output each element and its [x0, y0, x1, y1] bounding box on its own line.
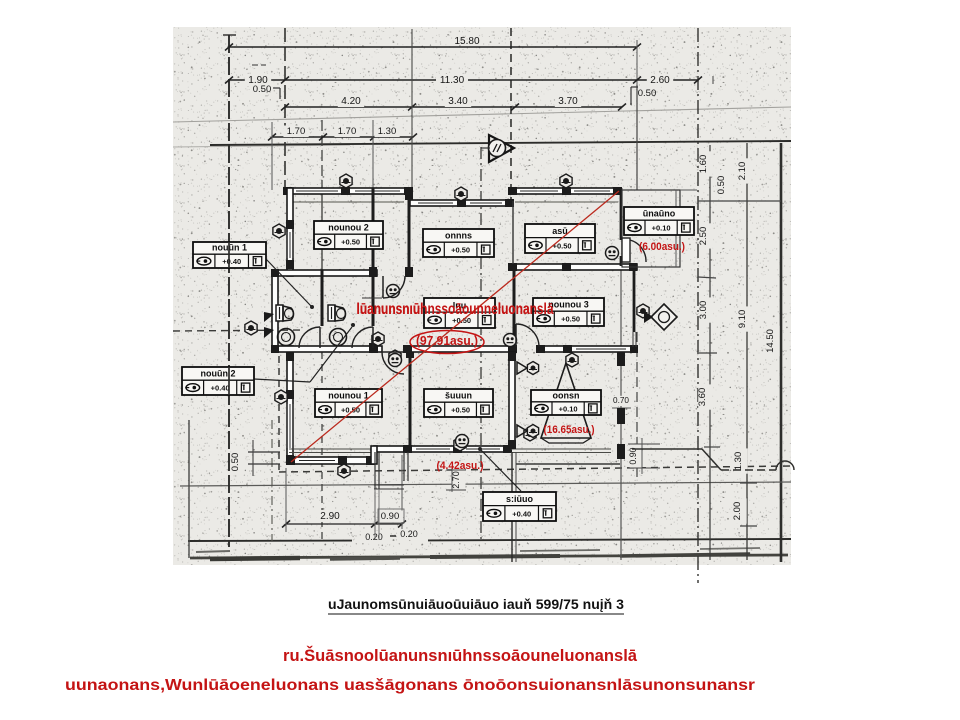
svg-text:+0.50: +0.50 — [451, 246, 470, 255]
svg-text:0.50: 0.50 — [638, 88, 657, 99]
svg-text:uunaonans,Wunlūāoeneluonans ua: uunaonans,Wunlūāoeneluonans uasšāgonans … — [65, 677, 755, 694]
svg-text:nouūn 2: nouūn 2 — [201, 369, 236, 379]
svg-text:1.60: 1.60 — [698, 155, 709, 174]
svg-text:s:iūuo: s:iūuo — [506, 494, 533, 504]
svg-text:+0.50: +0.50 — [561, 315, 580, 324]
svg-text:onnns: onnns — [445, 231, 472, 241]
svg-text:3.00: 3.00 — [698, 301, 709, 320]
svg-text:2.60: 2.60 — [650, 75, 670, 86]
svg-text:0.20: 0.20 — [400, 529, 418, 539]
svg-text:nounou 3: nounou 3 — [548, 300, 589, 310]
svg-text:nounou 1: nounou 1 — [328, 391, 369, 401]
svg-text:(6.00asu.): (6.00asu.) — [639, 241, 685, 253]
svg-text:0.90: 0.90 — [628, 447, 638, 464]
svg-text:11.30: 11.30 — [440, 75, 465, 86]
svg-text:uJaunomsūnuiāuoūuiāuo iauň 599: uJaunomsūnuiāuoūuiāuo iauň 599/75 nuįň 3 — [328, 597, 625, 612]
svg-text:1.70: 1.70 — [338, 126, 357, 137]
svg-text:4.20: 4.20 — [341, 96, 361, 107]
svg-text:1.70: 1.70 — [287, 126, 306, 137]
svg-text:3.40: 3.40 — [448, 96, 468, 107]
svg-text:1.30: 1.30 — [733, 452, 744, 471]
svg-text:2.00: 2.00 — [732, 502, 743, 521]
svg-text:+0.40: +0.40 — [211, 384, 230, 393]
svg-text:0.50: 0.50 — [716, 176, 727, 195]
svg-text:2.50: 2.50 — [698, 227, 709, 246]
svg-text:2.10: 2.10 — [737, 162, 748, 181]
svg-text:ūnaūno: ūnaūno — [643, 209, 676, 219]
svg-text:9.10: 9.10 — [737, 310, 748, 329]
svg-text:+0.40: +0.40 — [222, 257, 241, 266]
svg-text:+0.50: +0.50 — [553, 241, 572, 250]
svg-text:+0.40: +0.40 — [512, 509, 531, 518]
svg-text:+0.10: +0.10 — [652, 224, 671, 233]
svg-text:15.80: 15.80 — [454, 36, 479, 47]
svg-text:oonsn: oonsn — [553, 390, 580, 400]
svg-text:lūanunsnıūhnssoāounneluonanslā: lūanunsnıūhnssoāounneluonanslā — [357, 301, 554, 318]
svg-text:šuuun: šuuun — [445, 391, 472, 401]
svg-text:+0.10: +0.10 — [559, 404, 578, 413]
svg-text:nounou 2: nounou 2 — [328, 223, 369, 233]
svg-text:2.90: 2.90 — [320, 511, 340, 522]
svg-text:+0.50: +0.50 — [341, 238, 360, 247]
svg-text:(16.65asu.): (16.65asu.) — [544, 424, 595, 436]
svg-text:0.50: 0.50 — [230, 453, 241, 472]
svg-text:ru.Šuāsnoolūanunsnıūhnssoāoune: ru.Šuāsnoolūanunsnıūhnssoāouneluonanslā — [283, 646, 638, 665]
svg-text:3.60: 3.60 — [697, 388, 708, 407]
svg-text:0.50: 0.50 — [253, 84, 272, 95]
svg-text:0.70: 0.70 — [613, 396, 629, 405]
svg-text:0.90: 0.90 — [381, 511, 400, 522]
svg-text:(4.42asu.): (4.42asu.) — [437, 460, 484, 472]
svg-text:3.70: 3.70 — [558, 96, 578, 107]
svg-text:(97.91asu.): (97.91asu.) — [416, 334, 478, 348]
svg-text:0.20: 0.20 — [365, 532, 383, 542]
svg-text:14.50: 14.50 — [765, 329, 776, 353]
svg-text:+0.50: +0.50 — [451, 406, 470, 415]
svg-text:1.30: 1.30 — [378, 126, 397, 137]
